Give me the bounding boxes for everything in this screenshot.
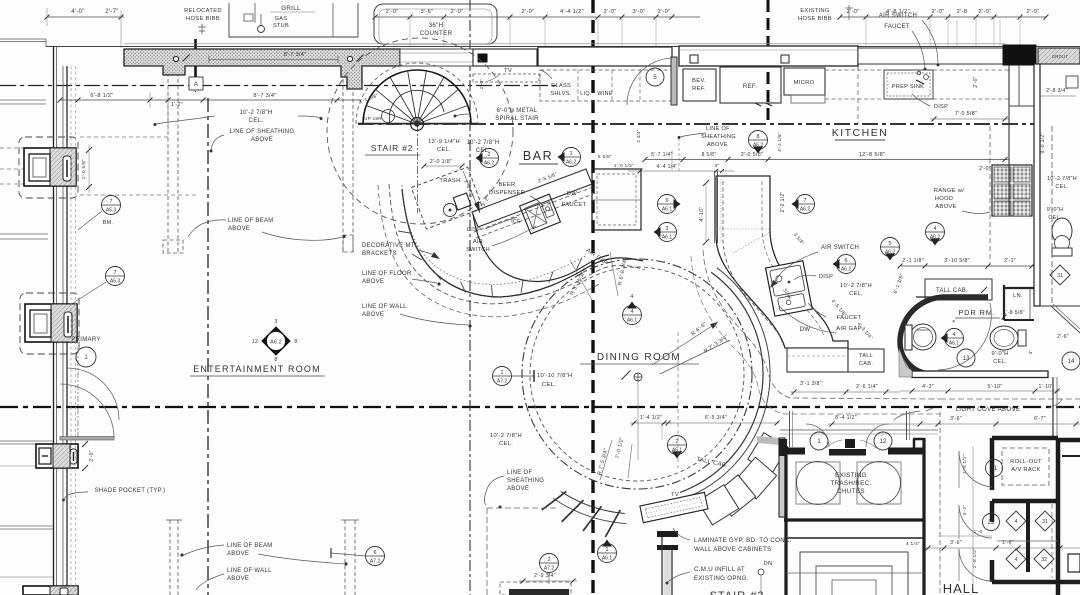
svg-text:8'-7 3/4": 8'-7 3/4" [284,52,306,58]
svg-text:DISP: DISP [467,227,481,233]
svg-text:RANGE w/: RANGE w/ [934,188,965,194]
svg-text:A6.1: A6.1 [949,340,960,346]
svg-text:φ: φ [953,318,956,323]
svg-text:A6.2: A6.2 [566,159,577,165]
svg-text:RELOCATED: RELOCATED [184,8,222,14]
svg-text:DINING ROOM: DINING ROOM [597,352,681,363]
svg-text:FAUCET: FAUCET [837,315,862,321]
svg-text:BAR: BAR [523,149,553,163]
svg-text:PREP SINK: PREP SINK [892,84,924,90]
svg-text:ABOVE: ABOVE [507,486,529,492]
svg-text:HOOD: HOOD [935,196,954,202]
svg-text:4: 4 [631,309,634,315]
svg-text:2'-8 3/4": 2'-8 3/4" [1046,88,1068,94]
svg-text:1'-4 1/2": 1'-4 1/2" [640,415,662,421]
svg-text:BM.: BM. [103,220,113,226]
svg-text:C.M.U INFILL AT: C.M.U INFILL AT [694,566,745,573]
svg-text:CEL.: CEL. [249,118,264,124]
svg-text:10'-10 7/8"H: 10'-10 7/8"H [537,373,572,379]
svg-text:FAUCET: FAUCET [562,202,587,208]
svg-text:COUNTER: COUNTER [420,30,453,37]
svg-text:10'-2 7/8"H: 10'-2 7/8"H [467,140,500,146]
svg-text:ABOVE: ABOVE [228,226,250,232]
svg-text:LN.: LN. [1013,293,1023,299]
svg-text:13: 13 [963,356,970,362]
svg-text:SHEATHING: SHEATHING [701,134,736,140]
svg-text:2'-0": 2'-0" [846,9,859,15]
svg-text:TRASH: TRASH [439,178,460,184]
svg-text:CEL.: CEL. [993,359,1007,365]
svg-text:12'-8 5/8": 12'-8 5/8" [859,152,886,158]
svg-text:13'-9 1/4"H: 13'-9 1/4"H [428,139,460,145]
svg-text:BEV.: BEV. [692,78,706,84]
svg-text:2'-0": 2'-0" [931,9,944,15]
svg-text:EXISTING OPNG.: EXISTING OPNG. [694,575,749,582]
svg-text:2'-0": 2'-0" [973,76,979,87]
svg-text:1: 1 [570,151,573,157]
svg-text:2'-2 1/2": 2'-2 1/2" [780,192,786,213]
svg-text:STUB: STUB [273,23,289,29]
svg-text:2'-0": 2'-0" [479,79,484,90]
svg-text:HOSE BIBB: HOSE BIBB [798,16,832,22]
svg-text:3": 3" [715,163,720,168]
svg-text:2'-7": 2'-7" [105,9,118,15]
svg-text:A6.1: A6.1 [602,555,613,561]
svg-text:3'-6": 3'-6" [420,9,433,15]
svg-text:2'-0": 2'-0" [978,9,991,15]
svg-text:1: 1 [606,547,609,553]
svg-text:7: 7 [804,198,807,204]
svg-text:2'-6 1/4": 2'-6 1/4" [856,384,878,390]
svg-text:TALL: TALL [859,353,873,359]
svg-text:CEL.: CEL. [1055,184,1068,190]
svg-text:2: 2 [548,557,551,563]
svg-text:6'-5 3/4": 6'-5 3/4" [705,415,727,421]
svg-text:2'-8: 2'-8 [957,9,968,15]
svg-text:4: 4 [934,226,937,232]
svg-text:GRILL: GRILL [281,5,301,12]
svg-text:STAIR #2: STAIR #2 [710,590,765,595]
svg-text:8 5/8": 8 5/8" [702,152,717,158]
svg-text:6: 6 [666,198,669,204]
svg-text:HOSE BIBB: HOSE BIBB [186,16,220,22]
svg-text:GROUT: GROUT [1052,54,1069,59]
svg-text:31: 31 [1057,273,1063,279]
svg-text:WINE: WINE [597,91,612,97]
svg-text:LINE OF BEAM: LINE OF BEAM [228,218,274,224]
svg-text:A5.3: A5.3 [106,207,117,213]
svg-text:ABOVE: ABOVE [935,204,956,210]
svg-text:PRIMARY: PRIMARY [71,337,100,343]
svg-text:4'-4 1/4": 4'-4 1/4" [657,164,678,170]
svg-text:2'-1 1/8": 2'-1 1/8" [902,258,924,264]
svg-text:SPIRAL STAIR: SPIRAL STAIR [495,116,539,122]
svg-text:36"H: 36"H [429,22,444,29]
svg-text:2'-0": 2'-0" [1026,9,1039,15]
svg-text:21: 21 [991,466,998,472]
svg-text:LINE OF WALL: LINE OF WALL [362,304,407,310]
svg-text:3'-0": 3'-0" [632,9,645,15]
svg-text:DW: DW [567,191,577,197]
svg-text:KITCHEN: KITCHEN [832,127,889,139]
svg-text:2'-0": 2'-0" [89,450,95,461]
svg-text:2: 2 [488,152,491,158]
svg-text:7: 7 [114,270,117,276]
svg-text:5'-10": 5'-10" [987,384,1002,390]
svg-text:CEL.: CEL. [849,291,863,297]
svg-text:AIR SWITCH: AIR SWITCH [821,245,859,251]
svg-text:6'-0"φ METAL: 6'-0"φ METAL [497,108,538,114]
svg-text:DN: DN [764,561,773,567]
svg-text:DISP: DISP [819,274,833,280]
svg-text:6: 6 [374,550,377,556]
svg-text:1'-8 1/2": 1'-8 1/2" [962,454,967,474]
svg-text:10'-2 7/8"H: 10'-2 7/8"H [490,433,522,439]
svg-text:4'-2 1/8": 4'-2 1/8" [777,132,782,152]
svg-text:2'-0": 2'-0" [450,9,463,15]
svg-text:10'-2 7/8"H: 10'-2 7/8"H [240,110,273,116]
svg-text:TV: TV [504,68,512,74]
svg-text:10'-2 7/8"H: 10'-2 7/8"H [1047,176,1077,182]
svg-text:7: 7 [110,199,113,205]
svg-text:2 3/4": 2 3/4" [636,129,641,142]
svg-text:GLASS: GLASS [551,83,571,89]
svg-text:4: 4 [630,294,633,300]
svg-text:A/V RACK: A/V RACK [1011,467,1040,473]
svg-text:7'-0 5/8": 7'-0 5/8" [955,111,977,117]
svg-text:HALL: HALL [943,581,980,595]
svg-text:1: 1 [501,370,504,376]
svg-text:2'-0": 2'-0" [603,9,616,15]
svg-text:8: 8 [757,134,760,140]
svg-text:3'-6": 3'-6" [950,540,962,546]
svg-text:2'-0": 2'-0" [657,9,670,15]
svg-text:6: 6 [845,258,848,264]
svg-text:LINE OF FLOOR: LINE OF FLOOR [362,271,412,277]
svg-text:ABOVE: ABOVE [227,551,249,557]
svg-text:LIQ.: LIQ. [580,91,591,97]
svg-text:DISPENSER: DISPENSER [489,190,525,196]
svg-text:A6.2: A6.2 [270,340,282,346]
svg-text:1'-6: 1'-6 [974,529,983,534]
svg-text:2'-0 5/8": 2'-0 5/8" [81,159,87,179]
svg-text:TRASH/REC.: TRASH/REC. [830,480,871,487]
svg-text:ENTERTAINMENT ROOM: ENTERTAINMENT ROOM [193,364,321,374]
svg-text:PDR RM.: PDR RM. [958,308,995,317]
svg-text:9'-0"H: 9'-0"H [1047,207,1063,213]
svg-text:1'-2": 1'-2" [171,102,183,108]
svg-text:3: 3 [666,226,669,232]
svg-text:4": 4" [1028,350,1033,355]
svg-text:3'-10 5/8": 3'-10 5/8" [944,258,970,264]
svg-text:A7.2: A7.2 [544,565,555,571]
svg-text:3'-1 3/8": 3'-1 3/8" [800,381,822,387]
svg-text:CHUTES: CHUTES [837,488,865,495]
svg-text:AIR SWITCH: AIR SWITCH [879,13,917,19]
svg-text:6'-8 1/2": 6'-8 1/2" [90,93,113,99]
svg-text:2'-0 5/8": 2'-0 5/8" [741,152,763,158]
svg-text:4'-4 1/2": 4'-4 1/2" [560,9,584,15]
svg-text:STAIR #2: STAIR #2 [371,143,414,153]
svg-text:9'-0 1/2": 9'-0 1/2" [1040,133,1046,154]
svg-text:LAMINATE GYP. BD. TO CONC.: LAMINATE GYP. BD. TO CONC. [694,537,792,544]
svg-text:2'-0": 2'-0" [979,166,991,172]
svg-text:A6.2: A6.2 [841,266,852,272]
svg-text:8'-7 3/4": 8'-7 3/4" [253,93,276,99]
svg-text:DECORATIVE MTL: DECORATIVE MTL [362,243,419,249]
svg-text:31: 31 [1042,519,1048,525]
svg-text:SHEATHING: SHEATHING [507,478,544,484]
svg-text:2'-0 1/8": 2'-0 1/8" [430,159,452,165]
svg-text:2'-1": 2'-1" [1004,258,1016,264]
svg-text:2'-9 3/4": 2'-9 3/4" [534,573,556,579]
svg-text:12: 12 [252,339,258,345]
svg-text:9'-0"H: 9'-0"H [992,351,1009,357]
svg-text:SHADE POCKET (TYP.): SHADE POCKET (TYP.) [95,488,166,494]
svg-text:A6.2: A6.2 [484,160,495,166]
svg-text:A5.3: A5.3 [110,278,121,284]
svg-text:SWITCH: SWITCH [466,247,490,253]
svg-text:4'-0": 4'-0" [71,9,84,15]
svg-text:ABOVE: ABOVE [227,576,249,582]
svg-text:LINE OF SHEATHING: LINE OF SHEATHING [230,129,295,135]
svg-text:3'-6": 3'-6" [950,416,962,422]
svg-text:5: 5 [889,241,892,247]
svg-text:A7.2: A7.2 [370,558,381,564]
svg-text:GAS: GAS [275,16,288,22]
svg-text:LINE OF BEAM: LINE OF BEAM [227,543,273,549]
svg-text:ABOVE: ABOVE [707,142,728,148]
svg-text:3: 3 [274,319,277,325]
svg-text:6'-7": 6'-7" [1034,416,1046,422]
svg-text:3'-2": 3'-2" [962,505,967,516]
svg-text:A6.2: A6.2 [800,206,811,212]
svg-text:8'-4 1/2": 8'-4 1/2" [835,415,857,421]
svg-text:8: 8 [294,339,297,345]
svg-text:ABOVE: ABOVE [362,312,384,318]
svg-text:DW: DW [800,327,811,333]
svg-text:CAB.: CAB. [859,361,873,367]
svg-text:10'-2 7/8"H: 10'-2 7/8"H [840,283,872,289]
svg-text:A7.2: A7.2 [497,378,508,384]
svg-text:EXISTING: EXISTING [835,472,867,479]
svg-text:A6.1: A6.1 [662,206,673,212]
svg-text:4: 4 [1015,519,1018,525]
svg-text:A: A [194,82,198,88]
svg-text:LINE OF: LINE OF [706,126,730,132]
svg-text:REF.: REF. [743,83,758,90]
svg-text:BRACKETS: BRACKETS [362,251,397,257]
svg-text:WALL ABOVE CABINETS: WALL ABOVE CABINETS [694,546,771,553]
svg-text:UP 19R: UP 19R [364,116,382,121]
svg-text:TALL CAB.: TALL CAB. [936,288,968,294]
svg-text:MICRO: MICRO [794,80,815,86]
svg-text:TV: TV [671,492,679,498]
svg-text:A6.1: A6.1 [662,234,673,240]
svg-text:4'-3": 4'-3" [922,384,934,390]
svg-text:2'-0": 2'-0" [521,9,534,15]
svg-text:LINE OF WALL: LINE OF WALL [227,568,272,574]
svg-text:2'-6": 2'-6" [1057,334,1069,340]
svg-text:LINE OF: LINE OF [507,470,532,476]
svg-text:22: 22 [988,520,995,526]
svg-text:REF.: REF. [692,86,706,92]
svg-text:CEL.: CEL. [437,147,451,153]
svg-text:2'-0": 2'-0" [385,9,398,15]
svg-text:ABOVE: ABOVE [251,137,273,143]
svg-text:4: 4 [953,332,956,338]
svg-text:A6.1: A6.1 [627,317,638,323]
svg-text:4'-10": 4'-10" [699,206,705,221]
svg-text:14: 14 [1068,359,1075,365]
svg-text:12: 12 [880,439,887,445]
svg-text:1'-0 1/2": 1'-0 1/2" [614,163,634,169]
svg-text:32: 32 [1041,557,1047,563]
svg-text:8 5/8": 8 5/8" [598,154,612,160]
svg-text:1'-10": 1'-10" [1038,384,1053,390]
svg-text:DISP: DISP [934,104,948,110]
svg-text:8: 8 [274,357,277,363]
svg-text:LIGHT COVE ABOVE: LIGHT COVE ABOVE [956,406,1021,413]
svg-text:4: 4 [1015,557,1018,563]
svg-text:ROLL-OUT: ROLL-OUT [1010,459,1042,465]
svg-text:SHLVS.: SHLVS. [550,91,571,97]
svg-text:CEL.: CEL. [542,382,556,388]
svg-text:ABOVE: ABOVE [362,279,384,285]
svg-text:CEL.: CEL. [499,441,513,447]
svg-text:4 1/4": 4 1/4" [906,541,920,547]
svg-text:FAUCET: FAUCET [884,24,910,30]
svg-text:ICE: ICE [511,219,521,225]
svg-text:5'-7 1/4": 5'-7 1/4" [651,152,673,158]
svg-text:BEER: BEER [499,182,516,188]
svg-text:EXISTING: EXISTING [800,8,830,14]
